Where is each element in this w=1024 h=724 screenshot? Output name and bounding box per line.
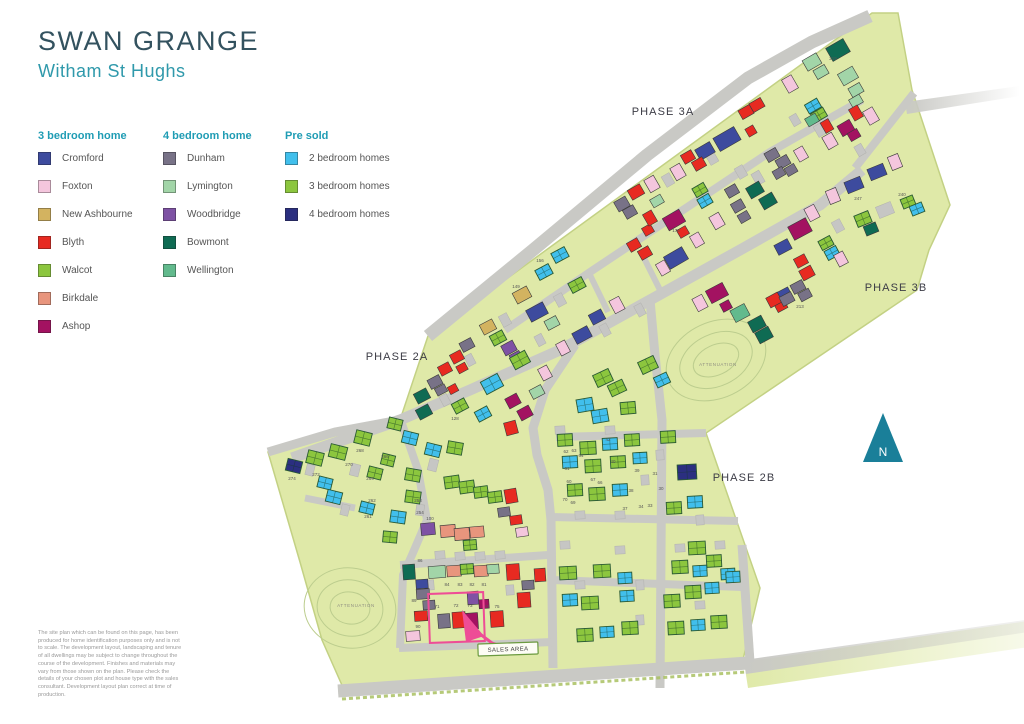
legend-column-title: 3 bedroom home — [38, 130, 133, 142]
legend-item-label: Dunham — [187, 153, 225, 164]
plot-number: 149 — [512, 284, 520, 289]
plot-number: 86 — [417, 558, 423, 563]
legend-item: Birkdale — [38, 292, 133, 305]
phase-label: PHASE 3B — [865, 282, 928, 294]
plot-number: 270 — [345, 462, 353, 467]
plot-number: 30 — [658, 486, 664, 491]
plot-number: 62 — [563, 449, 569, 454]
plot-number: 83 — [457, 582, 463, 587]
plot-number: 81 — [481, 582, 487, 587]
house-plot — [517, 592, 531, 608]
plot-number: 70 — [562, 497, 568, 502]
plot-number: 39 — [634, 468, 640, 473]
legend-item: Lymington — [163, 180, 252, 193]
legend-item: 4 bedroom homes — [285, 208, 390, 221]
plot-number: 262 — [368, 498, 376, 503]
legend-item-label: New Ashbourne — [62, 209, 133, 220]
site-map: 7172737475868483828190896263646160676670… — [0, 0, 1024, 724]
house-plot — [438, 614, 451, 629]
parking-strip — [575, 511, 585, 520]
plot-number: 266 — [381, 454, 389, 459]
plot-number: 90 — [415, 624, 421, 629]
legend-column-3: Pre sold2 bedroom homes3 bedroom homes4 … — [285, 130, 390, 236]
house-plot — [454, 527, 470, 540]
legend-item-label: Bowmont — [187, 237, 229, 248]
color-swatch — [163, 180, 176, 193]
parking-strip — [615, 546, 625, 555]
parking-strip — [575, 581, 585, 590]
legend-column-title: Pre sold — [285, 130, 390, 142]
plot-number: 213 — [796, 304, 804, 309]
plot-number: 247 — [854, 196, 862, 201]
plot-number: 74 — [484, 604, 490, 609]
house-plot — [447, 565, 462, 577]
parking-strip — [615, 511, 625, 520]
plot-number: 64 — [578, 453, 584, 458]
parking-strip — [435, 551, 446, 560]
color-swatch — [38, 320, 51, 333]
house-plot — [504, 488, 518, 504]
plot-number: 268 — [356, 448, 364, 453]
phase-label: PHASE 3A — [632, 106, 695, 118]
house-plot — [406, 631, 421, 642]
color-swatch — [163, 152, 176, 165]
parking-strip — [475, 552, 486, 561]
plot-number: 66 — [597, 480, 603, 485]
legend-item-label: Walcot — [62, 265, 92, 276]
legend-item: New Ashbourne — [38, 208, 133, 221]
parking-strip — [695, 601, 705, 610]
plot-number: 75 — [494, 604, 500, 609]
parking-strip — [715, 541, 725, 550]
parking-strip — [560, 541, 570, 550]
legend-item: 2 bedroom homes — [285, 152, 390, 165]
house-plot — [474, 565, 489, 577]
house-plot — [428, 565, 446, 578]
legend-item-label: 2 bedroom homes — [309, 153, 390, 164]
road-fading — [905, 86, 1020, 114]
legend-item-label: Woodbridge — [187, 209, 241, 220]
house-plot — [522, 580, 535, 590]
page-title: SWAN GRANGE — [38, 26, 259, 57]
house-plot — [506, 564, 520, 581]
house-plot — [487, 564, 500, 574]
attenuation-label: ATTENUATION — [699, 362, 737, 367]
header: SWAN GRANGE Witham St Hughs — [38, 26, 259, 82]
house-plot — [470, 526, 485, 538]
parking-strip — [675, 544, 685, 553]
legend-column-1: 3 bedroom homeCromfordFoxtonNew Ashbourn… — [38, 130, 133, 348]
site-plan-page: 7172737475868483828190896263646160676670… — [0, 0, 1024, 724]
parking-strip — [636, 580, 645, 590]
plot-number: 261 — [364, 514, 372, 519]
plot-number: 69 — [570, 500, 576, 505]
legend-item-label: Lymington — [187, 181, 233, 192]
house-plot — [416, 579, 429, 589]
color-swatch — [163, 236, 176, 249]
plot-number: 84 — [444, 582, 450, 587]
house-plot — [414, 611, 428, 622]
legend-item: Wellington — [163, 264, 252, 277]
legend-item: 3 bedroom homes — [285, 180, 390, 193]
color-swatch — [38, 236, 51, 249]
color-swatch — [38, 208, 51, 221]
legend-item: Walcot — [38, 264, 133, 277]
legend-item-label: 4 bedroom homes — [309, 209, 390, 220]
plot-number: 38 — [628, 488, 634, 493]
parking-strip — [605, 426, 615, 435]
plot-number: 89 — [411, 598, 417, 603]
house-plot — [402, 564, 415, 580]
legend-item: Cromford — [38, 152, 133, 165]
plot-number: 253 — [414, 498, 422, 503]
color-swatch — [38, 152, 51, 165]
legend-item: Foxton — [38, 180, 133, 193]
plot-number: 63 — [571, 448, 577, 453]
legend-item-label: Foxton — [62, 181, 93, 192]
disclaimer-text: The site plan which can be found on this… — [38, 630, 184, 699]
color-swatch — [285, 180, 298, 193]
house-plot — [490, 611, 504, 628]
plot-number: 37 — [622, 506, 628, 511]
plot-number: 272 — [312, 472, 320, 477]
legend-item: Dunham — [163, 152, 252, 165]
plot-number: 67 — [590, 477, 596, 482]
legend-item-label: Birkdale — [62, 293, 98, 304]
house-plot — [515, 527, 528, 538]
plot-number: 60 — [566, 479, 572, 484]
plot-number: 71 — [434, 604, 440, 609]
color-swatch — [38, 180, 51, 193]
color-swatch — [38, 292, 51, 305]
plot-number: 33 — [647, 503, 653, 508]
parking-strip — [495, 551, 506, 560]
parking-strip — [455, 552, 466, 561]
legend-item: Bowmont — [163, 236, 252, 249]
legend-column-2: 4 bedroom homeDunhamLymingtonWoodbridgeB… — [163, 130, 252, 292]
north-arrow-label: N — [879, 445, 888, 459]
plot-number: 128 — [451, 416, 459, 421]
plot-number: 40 — [610, 459, 616, 464]
legend-item-label: Blyth — [62, 237, 84, 248]
legend-item: Ashop — [38, 320, 133, 333]
plot-number: 176 — [672, 228, 680, 233]
plot-number: 31 — [652, 471, 658, 476]
parking-strip — [696, 515, 705, 525]
parking-strip — [641, 475, 650, 485]
legend-item-label: 3 bedroom homes — [309, 181, 390, 192]
color-swatch — [285, 208, 298, 221]
plot-number: 240 — [898, 192, 906, 197]
plot-number: 34 — [638, 504, 644, 509]
color-swatch — [163, 208, 176, 221]
page-subtitle: Witham St Hughs — [38, 61, 259, 82]
legend-item: Woodbridge — [163, 208, 252, 221]
plot-number: 42 — [605, 437, 611, 442]
parking-strip — [506, 585, 515, 596]
plot-number: 73 — [467, 603, 473, 608]
legend-item: Blyth — [38, 236, 133, 249]
house-plot — [509, 515, 522, 526]
legend-item-label: Cromford — [62, 153, 104, 164]
color-swatch — [285, 152, 298, 165]
plot-number: 264 — [366, 476, 374, 481]
legend-item-label: Ashop — [62, 321, 90, 332]
legend-item-label: Wellington — [187, 265, 234, 276]
house-plot — [421, 522, 436, 535]
house-plot — [497, 507, 510, 518]
house-plot — [534, 568, 546, 582]
plot-number: 72 — [453, 603, 459, 608]
legend-column-title: 4 bedroom home — [163, 130, 252, 142]
color-swatch — [163, 264, 176, 277]
house-plot — [440, 524, 456, 537]
plot-number: 100 — [426, 516, 434, 521]
plot-number: 82 — [469, 582, 475, 587]
color-swatch — [38, 264, 51, 277]
phase-label: PHASE 2B — [713, 472, 776, 484]
plot-number: 61 — [564, 466, 570, 471]
attenuation-label: ATTENUATION — [337, 603, 375, 608]
phase-label: PHASE 2A — [366, 351, 429, 363]
plot-number: 254 — [416, 510, 424, 515]
plot-number: 274 — [288, 476, 296, 481]
plot-number: 156 — [536, 258, 544, 263]
plot-number: 219 — [829, 56, 837, 61]
parking-strip — [656, 450, 665, 460]
parking-strip — [555, 426, 565, 435]
